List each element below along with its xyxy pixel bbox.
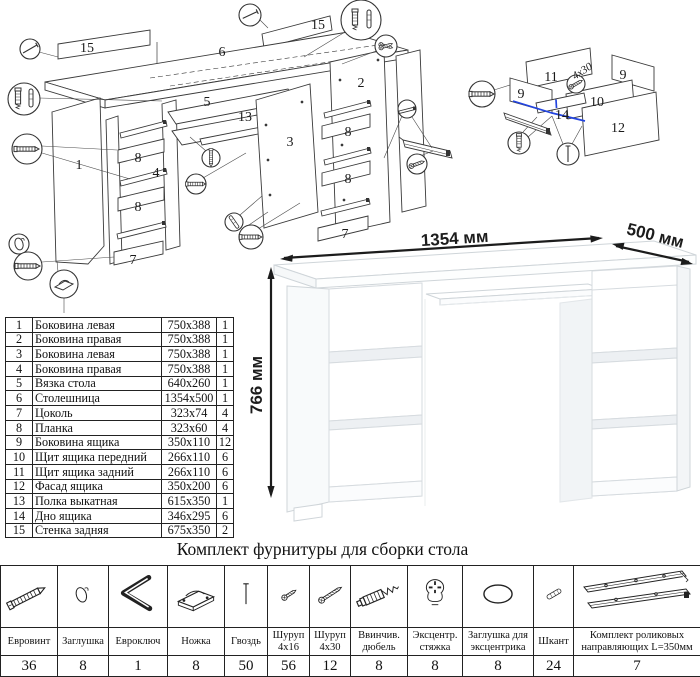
back-panel-left xyxy=(58,30,150,59)
part-label-6: 6 xyxy=(219,45,226,60)
part-qty: 2 xyxy=(217,523,234,538)
part-label-12: 12 xyxy=(611,121,625,136)
part-name: Боковина левая xyxy=(33,318,162,333)
hardware-kit-table: ЕвровинтЗаглушкаЕвроключНожкаГвоздьШуруп… xyxy=(0,565,700,677)
hardware-item-qty: 50 xyxy=(225,656,268,677)
part-number: 13 xyxy=(6,494,33,509)
part-number: 15 xyxy=(6,523,33,538)
hardware-item-name: Шуруп 4x16 xyxy=(268,628,310,656)
part-qty: 6 xyxy=(217,508,234,523)
part-name: Полка выкатная xyxy=(33,494,162,509)
part-label-2: 2 xyxy=(358,76,365,91)
hardware-item-qty: 7 xyxy=(574,656,700,677)
drawer-rail xyxy=(504,113,551,135)
part-label-1: 1 xyxy=(76,158,83,173)
part-number: 8 xyxy=(6,420,33,435)
part-label-11: 11 xyxy=(544,70,557,85)
foot-icon xyxy=(168,566,225,628)
part-qty: 1 xyxy=(217,362,234,377)
parts-table-row: 11Щит ящика задний266x1106 xyxy=(6,464,234,479)
euro-icon xyxy=(1,566,58,628)
hardware-item-name: Эксцентр. стяжка xyxy=(408,628,463,656)
part-number: 1 xyxy=(6,318,33,333)
part-qty: 1 xyxy=(217,347,234,362)
hardware-item-name: Гвоздь xyxy=(225,628,268,656)
part-number: 7 xyxy=(6,406,33,421)
hardware-item-qty: 36 xyxy=(1,656,58,677)
part-label-3: 3 xyxy=(287,135,294,150)
part-name: Цоколь xyxy=(33,406,162,421)
part-name: Стенка задняя xyxy=(33,523,162,538)
part-name: Вязка стола xyxy=(33,376,162,391)
callout-dowel-pin xyxy=(8,83,40,115)
screw16-icon xyxy=(268,566,310,628)
part-number: 11 xyxy=(6,464,33,479)
hardware-item-name: Заглушка xyxy=(58,628,109,656)
part-label-8: 8 xyxy=(345,172,352,187)
part-size: 1354x500 xyxy=(162,391,217,406)
part-name: Планка xyxy=(33,420,162,435)
part-qty: 6 xyxy=(217,479,234,494)
part-name: Щит ящика передний xyxy=(33,450,162,465)
parts-list-table: 1Боковина левая750x38812Боковина правая7… xyxy=(5,317,234,538)
hexkey-icon xyxy=(109,566,168,628)
parts-table-row: 12Фасад ящика350x2006 xyxy=(6,479,234,494)
part-size: 640x260 xyxy=(162,376,217,391)
part-label-14: 14 xyxy=(555,108,569,123)
part-size: 615x350 xyxy=(162,494,217,509)
height-dimension-label: 766 мм xyxy=(250,356,266,414)
parts-table-row: 5Вязка стола640x2601 xyxy=(6,376,234,391)
part-name: Столешница xyxy=(33,391,162,406)
rails-icon xyxy=(574,566,700,628)
hardware-item-name: Шуруп 4x30 xyxy=(310,628,351,656)
part-number: 3 xyxy=(6,347,33,362)
hardware-item-qty: 1 xyxy=(109,656,168,677)
part-label-7: 7 xyxy=(130,253,137,268)
parts-table-row: 9Боковина ящика350x11012 xyxy=(6,435,234,450)
screw30-icon xyxy=(310,566,351,628)
part-number: 6 xyxy=(6,391,33,406)
parts-table-row: 13Полка выкатная615x3501 xyxy=(6,494,234,509)
parts-table-row: 8Планка323x604 xyxy=(6,420,234,435)
part-qty: 1 xyxy=(217,376,234,391)
part-name: Боковина ящика xyxy=(33,435,162,450)
side-panel-1 xyxy=(52,98,104,264)
parts-table-row: 7Цоколь323x744 xyxy=(6,406,234,421)
pin-icon xyxy=(534,566,574,628)
part-size: 675x350 xyxy=(162,523,217,538)
hardware-item-name: Ввинчив. дюбель xyxy=(351,628,408,656)
hardware-item-name: Евровинт xyxy=(1,628,58,656)
part-qty: 12 xyxy=(217,435,234,450)
hardware-item-name: Шкант xyxy=(534,628,574,656)
part-name: Боковина правая xyxy=(33,362,162,377)
camlock-icon xyxy=(408,566,463,628)
hardware-icons-row xyxy=(1,566,700,628)
hardware-qty-row: 36818505612888247 xyxy=(1,656,700,677)
hardware-item-qty: 8 xyxy=(408,656,463,677)
part-qty: 1 xyxy=(217,494,234,509)
part-number: 9 xyxy=(6,435,33,450)
part-number: 2 xyxy=(6,332,33,347)
part-number: 14 xyxy=(6,508,33,523)
parts-table-row: 2Боковина правая750x3881 xyxy=(6,332,234,347)
part-qty: 4 xyxy=(217,420,234,435)
hardware-item-name: Ножка xyxy=(168,628,225,656)
part-qty: 6 xyxy=(217,450,234,465)
part-size: 323x60 xyxy=(162,420,217,435)
parts-table-row: 15Стенка задняя675x3502 xyxy=(6,523,234,538)
part-label-9: 9 xyxy=(518,87,525,102)
part-size: 346x295 xyxy=(162,508,217,523)
assembly-instruction-page: 1354 мм 500 мм 766 мм xyxy=(0,0,700,677)
callout-dowel-pin xyxy=(341,0,381,40)
cap-icon xyxy=(58,566,109,628)
dowelscrew-icon xyxy=(351,566,408,628)
center-panel-3 xyxy=(256,84,318,228)
part-label-15: 15 xyxy=(311,18,325,33)
part-size: 750x388 xyxy=(162,318,217,333)
parts-list-body: 1Боковина левая750x38812Боковина правая7… xyxy=(6,318,234,538)
part-label-5: 5 xyxy=(204,95,211,110)
part-number: 4 xyxy=(6,362,33,377)
nail-icon xyxy=(225,566,268,628)
part-label-9: 9 xyxy=(620,68,627,83)
part-qty: 4 xyxy=(217,406,234,421)
part-size: 750x388 xyxy=(162,362,217,377)
part-qty: 6 xyxy=(217,464,234,479)
hardware-item-name: Заглушка для эксцентрика xyxy=(463,628,534,656)
part-name: Дно ящика xyxy=(33,508,162,523)
part-size: 350x200 xyxy=(162,479,217,494)
exploded-assembly-diagram: 15 6 15 5 13 3 2 1 8 4 8 7 8 8 7 11 9 9 … xyxy=(0,0,700,315)
part-qty: 1 xyxy=(217,318,234,333)
part-qty: 1 xyxy=(217,332,234,347)
part-label-10: 10 xyxy=(590,95,604,110)
part-name: Боковина правая xyxy=(33,332,162,347)
part-size: 266x110 xyxy=(162,450,217,465)
part-number: 12 xyxy=(6,479,33,494)
part-label-15: 15 xyxy=(80,41,94,56)
part-label-13: 13 xyxy=(238,110,252,125)
part-size: 750x388 xyxy=(162,332,217,347)
parts-table-row: 10Щит ящика передний266x1106 xyxy=(6,450,234,465)
parts-table-row: 4Боковина правая750x3881 xyxy=(6,362,234,377)
hardware-item-qty: 12 xyxy=(310,656,351,677)
camcap-icon xyxy=(463,566,534,628)
hardware-item-qty: 56 xyxy=(268,656,310,677)
part-qty: 1 xyxy=(217,391,234,406)
part-label-8: 8 xyxy=(135,200,142,215)
part-number: 10 xyxy=(6,450,33,465)
hardware-item-name: Евроключ xyxy=(109,628,168,656)
part-size: 266x110 xyxy=(162,464,217,479)
part-label-7: 7 xyxy=(342,227,349,242)
part-label-8: 8 xyxy=(135,151,142,166)
part-name: Щит ящика задний xyxy=(33,464,162,479)
part-name: Фасад ящика xyxy=(33,479,162,494)
hardware-kit-title: Комплект фурнитуры для сборки стола xyxy=(0,539,645,560)
hardware-item-qty: 8 xyxy=(351,656,408,677)
part-size: 323x74 xyxy=(162,406,217,421)
hardware-item-qty: 8 xyxy=(463,656,534,677)
part-size: 750x388 xyxy=(162,347,217,362)
part-label-8: 8 xyxy=(345,125,352,140)
parts-table-row: 14Дно ящика346x2956 xyxy=(6,508,234,523)
hardware-item-qty: 8 xyxy=(58,656,109,677)
part-size: 350x110 xyxy=(162,435,217,450)
part-name: Боковина левая xyxy=(33,347,162,362)
part-number: 5 xyxy=(6,376,33,391)
hardware-item-name: Комплект роликовых направляющих L=350мм xyxy=(574,628,700,656)
parts-table-row: 3Боковина левая750x3881 xyxy=(6,347,234,362)
hardware-names-row: ЕвровинтЗаглушкаЕвроключНожкаГвоздьШуруп… xyxy=(1,628,700,656)
parts-table-row: 1Боковина левая750x3881 xyxy=(6,318,234,333)
side-panel-4r xyxy=(396,50,426,212)
part-label-4: 4 xyxy=(153,166,160,181)
hardware-item-qty: 24 xyxy=(534,656,574,677)
parts-table-row: 6Столешница1354x5001 xyxy=(6,391,234,406)
hardware-item-qty: 8 xyxy=(168,656,225,677)
